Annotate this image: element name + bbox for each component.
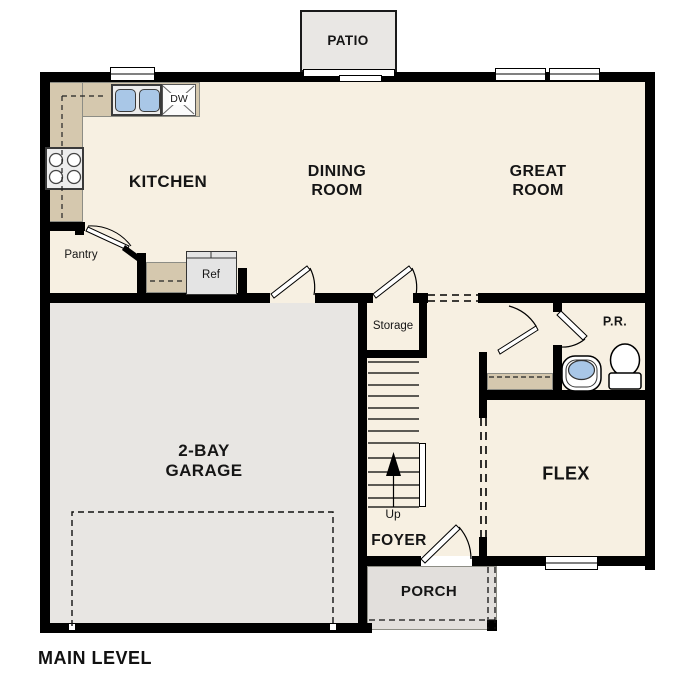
powder-room-label: P.R. [603, 315, 627, 330]
flex-window [545, 556, 598, 570]
wall-stair-right [419, 293, 427, 358]
front-door-threshold [421, 556, 472, 566]
garage-label: 2-BAY GARAGE [165, 441, 242, 481]
wall-storage-bottom [367, 350, 427, 358]
foyer-label: FOYER [371, 532, 426, 550]
sink-basin-left [115, 89, 136, 112]
pantry-label: Pantry [64, 249, 97, 261]
dining-room-label: DINING ROOM [308, 163, 366, 201]
closet-shelf [487, 373, 553, 390]
wall-pr-divider-stub [553, 303, 562, 312]
great-room-label: GREAT ROOM [510, 163, 567, 201]
wall-pantry-notch [75, 222, 84, 235]
sink-basin-right [139, 89, 160, 112]
floor-plan: PATIO KITCHEN DINING ROOM GREAT ROOM 2-B… [0, 0, 687, 687]
wall-south [367, 556, 655, 566]
up-label: Up [385, 507, 400, 521]
wall-flex-left-b [479, 537, 487, 556]
kitchen-counter-bottom [146, 262, 187, 293]
flex-label: FLEX [542, 463, 590, 484]
plan-title: MAIN LEVEL [38, 648, 152, 669]
stove [45, 147, 84, 190]
storage-label: Storage [373, 320, 413, 332]
kitchen-window [110, 67, 155, 81]
wall-ref-stub [238, 268, 247, 293]
wall-pantry-right [137, 253, 146, 293]
wall-flex-top [479, 390, 655, 400]
stair-railing [419, 443, 426, 507]
porch-post [487, 620, 497, 631]
great-room-window-2 [549, 68, 600, 81]
porch-label: PORCH [401, 583, 457, 601]
dishwasher-label: DW [169, 93, 189, 105]
garage-door-notch-right [330, 624, 336, 630]
wall-exterior-right [645, 72, 655, 570]
garage-door-notch-left [69, 624, 75, 630]
patio-slider-panel [339, 75, 382, 82]
wall-mid-d [478, 293, 655, 303]
wall-garage-bottom [40, 623, 372, 633]
refrigerator-label: Ref [202, 269, 220, 281]
wall-flex-left-a [479, 400, 487, 418]
patio-label: PATIO [327, 33, 368, 49]
wall-garage-right [358, 293, 367, 633]
kitchen-label: KITCHEN [129, 172, 207, 192]
great-room-window-1 [495, 68, 546, 81]
